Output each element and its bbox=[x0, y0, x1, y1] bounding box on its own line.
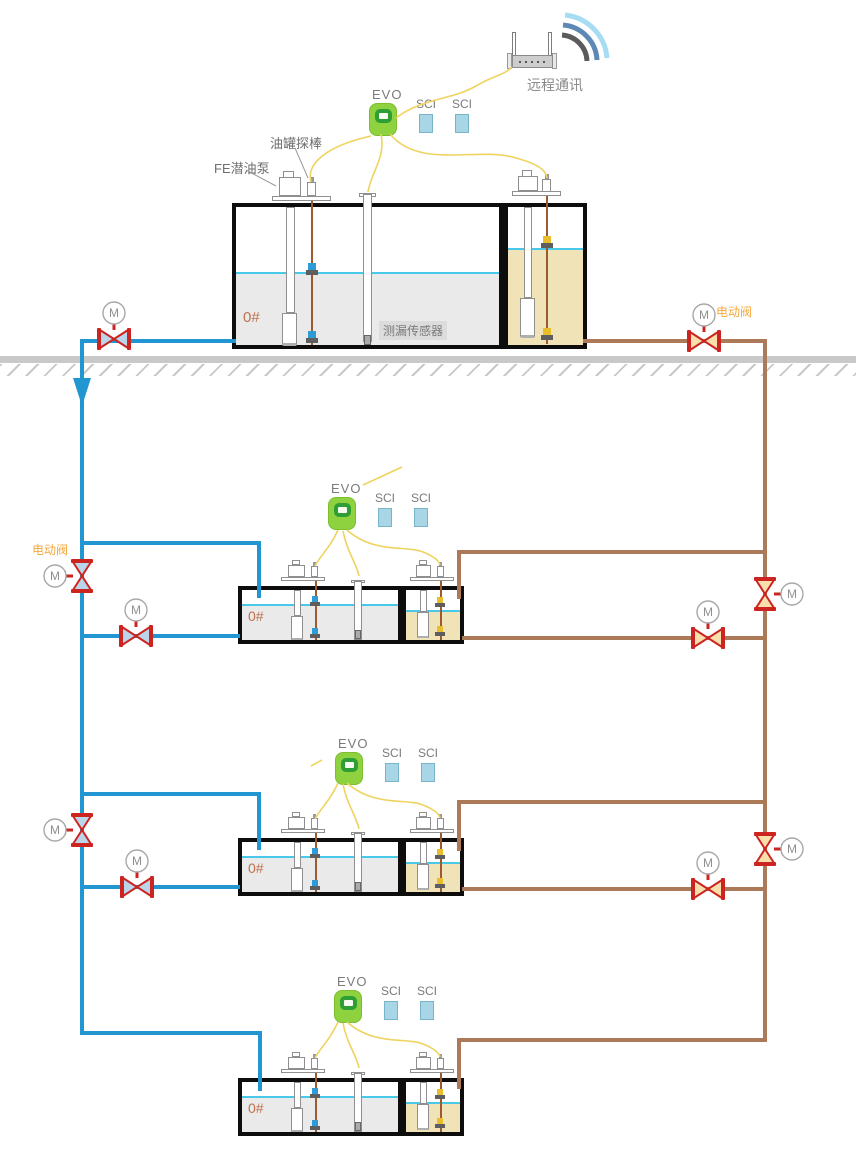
fuel-grade-label: 0# bbox=[248, 1100, 264, 1116]
tank-divider-wall bbox=[398, 1082, 406, 1132]
manhole-flange bbox=[272, 196, 331, 201]
evo-label: EVO bbox=[372, 87, 402, 102]
fuel-grade-label: 0# bbox=[243, 309, 260, 326]
tank-probe-head bbox=[307, 182, 316, 196]
tank-divider-wall bbox=[398, 590, 406, 640]
probe-connector bbox=[313, 814, 316, 818]
evo-console-icon bbox=[328, 497, 356, 530]
ground-hatch bbox=[0, 364, 856, 376]
evo-console-unit: EVO SCI SCI bbox=[334, 736, 484, 798]
probe-float-base bbox=[435, 884, 445, 888]
svg-text:M: M bbox=[50, 569, 60, 583]
fuel-station-diagram: 远程通讯 EVO SCI SCI EVO SCI SCI EVO SCI SCI… bbox=[0, 0, 856, 1154]
probe-float-marker bbox=[308, 263, 316, 270]
manhole-flange bbox=[410, 1069, 454, 1073]
wifi-arc-middle bbox=[563, 25, 597, 60]
evo-label: EVO bbox=[338, 736, 368, 751]
buried-fuel-tank: 0# bbox=[238, 1078, 464, 1136]
probe-float-base bbox=[310, 1094, 320, 1098]
pump-motor-icon bbox=[416, 565, 431, 577]
sci-module-icon bbox=[414, 508, 428, 527]
sci-module-icon bbox=[421, 763, 435, 782]
wifi-arc-outer bbox=[565, 15, 607, 58]
evo-console-unit: EVO SCI SCI bbox=[327, 481, 477, 543]
gasoline-pipeline bbox=[459, 341, 765, 1089]
tank-liquid-gasoline bbox=[406, 862, 460, 892]
svg-text:M: M bbox=[50, 823, 60, 837]
valve-motor-icon bbox=[781, 583, 803, 605]
pump-tube bbox=[420, 842, 427, 864]
router-leds bbox=[519, 61, 545, 63]
submersible-pump-icon bbox=[291, 868, 303, 892]
probe-float-marker bbox=[543, 236, 551, 243]
probe-float-base bbox=[541, 243, 553, 248]
tank-liquid-diesel bbox=[242, 1096, 398, 1132]
wire-to-remote-stub bbox=[311, 760, 322, 766]
wifi-signal-icon bbox=[562, 15, 607, 61]
pump-motor-icon bbox=[416, 1057, 431, 1069]
probe-float-base bbox=[435, 632, 445, 636]
tank-liquid-gasoline bbox=[406, 610, 460, 640]
manhole-flange bbox=[410, 577, 454, 581]
evo-console-unit: EVO SCI SCI bbox=[333, 974, 483, 1036]
gasoline-fill-branch-row2 bbox=[459, 552, 765, 599]
submersible-pump-icon bbox=[291, 616, 303, 640]
probe-float-base bbox=[306, 338, 318, 343]
manhole-flange bbox=[281, 829, 325, 833]
fe-pump-label: FE潜油泵 bbox=[214, 158, 270, 177]
probe-float-base bbox=[310, 602, 320, 606]
evo-console-icon bbox=[369, 103, 397, 136]
manhole-flange bbox=[281, 577, 325, 581]
valve-motor-icon bbox=[125, 599, 147, 621]
tank-probe-head bbox=[311, 818, 318, 829]
pump-tube bbox=[294, 1082, 301, 1108]
tank-liquid-diesel bbox=[242, 604, 398, 640]
sci-module: SCI bbox=[377, 746, 407, 782]
sci-module-icon bbox=[384, 1001, 398, 1020]
svg-text:M: M bbox=[109, 306, 119, 320]
valve-motor-icon bbox=[697, 852, 719, 874]
tank-probe-label: 油罐探棒 bbox=[270, 133, 322, 152]
sci-module: SCI bbox=[413, 746, 443, 782]
svg-text:M: M bbox=[703, 605, 713, 619]
probe-connector bbox=[313, 562, 316, 566]
motor-valve: M bbox=[97, 302, 131, 350]
submersible-pump-icon bbox=[282, 313, 297, 346]
submersible-pump-icon bbox=[291, 1108, 303, 1132]
probe-connector bbox=[310, 177, 314, 182]
sci-module-icon bbox=[420, 1001, 434, 1020]
sci-module: SCI bbox=[376, 984, 406, 1020]
pump-motor-cap bbox=[522, 170, 532, 177]
evo-label: EVO bbox=[337, 974, 367, 989]
sci-module-icon bbox=[378, 508, 392, 527]
evo-console-unit: EVO SCI SCI bbox=[368, 87, 518, 149]
diesel-main-pipe bbox=[82, 341, 260, 1091]
svg-text:M: M bbox=[131, 603, 141, 617]
buried-fuel-tank: 0# bbox=[238, 838, 464, 896]
tank-probe-head bbox=[437, 566, 444, 577]
probe-float-base bbox=[541, 335, 553, 340]
tank-divider-wall bbox=[499, 207, 508, 345]
remote-comm-label: 远程通讯 bbox=[527, 75, 583, 95]
probe-float-marker bbox=[543, 328, 551, 335]
svg-text:M: M bbox=[703, 856, 713, 870]
tank-liquid-gasoline bbox=[406, 1102, 460, 1132]
sci-module-icon bbox=[419, 114, 433, 133]
pump-motor-icon bbox=[416, 817, 431, 829]
probe-float-base bbox=[435, 1124, 445, 1128]
sci-module: SCI bbox=[447, 97, 477, 133]
sci-module: SCI bbox=[370, 491, 400, 527]
pump-tube bbox=[524, 207, 532, 298]
probe-connector bbox=[439, 562, 442, 566]
diesel-fill-branch-row3 bbox=[82, 794, 259, 850]
submersible-pump-icon bbox=[417, 864, 429, 890]
pump-motor-icon bbox=[288, 817, 305, 829]
svg-text:M: M bbox=[787, 842, 797, 856]
motor-valve: M bbox=[120, 850, 154, 898]
manhole-flange bbox=[410, 829, 454, 833]
svg-text:M: M bbox=[699, 308, 709, 322]
svg-text:M: M bbox=[787, 587, 797, 601]
evo-screen bbox=[334, 503, 351, 517]
probe-connector bbox=[313, 1054, 316, 1058]
motor-valve: M bbox=[44, 813, 93, 847]
pump-tube bbox=[294, 590, 301, 616]
evo-screen bbox=[375, 109, 392, 123]
valve-motor-icon bbox=[781, 838, 803, 860]
tank-probe-leader bbox=[295, 148, 308, 178]
electric-valve-label: 电动阀 bbox=[716, 303, 752, 320]
pump-motor-icon bbox=[288, 565, 305, 577]
leak-sensor-icon bbox=[355, 630, 361, 639]
tank-divider-wall bbox=[398, 842, 406, 892]
probe-float-base bbox=[310, 854, 320, 858]
probe-float-marker bbox=[308, 331, 316, 338]
valve-motor-icon bbox=[44, 565, 66, 587]
evo-console-icon bbox=[335, 752, 363, 785]
probe-connector bbox=[439, 814, 442, 818]
pump-motor-cap bbox=[283, 171, 294, 178]
pump-tube bbox=[420, 590, 427, 612]
gasoline-main-pipe bbox=[459, 341, 765, 1089]
ground-line bbox=[0, 356, 856, 363]
valve-motor-icon bbox=[697, 601, 719, 623]
probe-connector bbox=[545, 174, 549, 179]
router-icon bbox=[512, 55, 553, 68]
tank-probe-head bbox=[437, 818, 444, 829]
tank-probe-head bbox=[437, 1058, 444, 1069]
pump-motor-cap bbox=[292, 812, 300, 817]
probe-float-base bbox=[435, 603, 445, 607]
sci-module: SCI bbox=[412, 984, 442, 1020]
pump-motor-cap bbox=[419, 560, 427, 565]
probe-float-base bbox=[310, 886, 320, 890]
diesel-pipeline bbox=[82, 341, 260, 1091]
evo-label: EVO bbox=[331, 481, 361, 496]
valve-motor-icon bbox=[44, 819, 66, 841]
electric-valve-label: 电动阀 bbox=[32, 541, 68, 558]
valve-motor-icon bbox=[126, 850, 148, 872]
motor-valve: M bbox=[754, 577, 803, 611]
probe-wire bbox=[546, 196, 548, 344]
pump-tube bbox=[286, 207, 295, 313]
pump-tube bbox=[294, 842, 301, 868]
leak-sensor-label: 测漏传感器 bbox=[379, 321, 447, 340]
fuel-grade-label: 0# bbox=[248, 860, 264, 876]
probe-float-base bbox=[306, 270, 318, 275]
motor-valve: M bbox=[754, 832, 803, 866]
pump-tube bbox=[420, 1082, 427, 1104]
manhole-flange bbox=[281, 1069, 325, 1073]
tank-probe-head bbox=[311, 1058, 318, 1069]
evo-console-icon bbox=[334, 990, 362, 1023]
svg-text:M: M bbox=[132, 854, 142, 868]
probe-connector bbox=[439, 1054, 442, 1058]
submersible-pump-icon bbox=[417, 1104, 429, 1130]
buried-fuel-tank: 0# bbox=[238, 586, 464, 644]
sci-module-icon bbox=[455, 114, 469, 133]
motor-valve: M bbox=[691, 601, 725, 649]
wifi-arc-inner bbox=[562, 35, 587, 61]
submersible-pump-icon bbox=[417, 612, 429, 638]
leak-sensor-icon bbox=[355, 1122, 361, 1131]
probe-float-base bbox=[310, 634, 320, 638]
probe-float-base bbox=[435, 1095, 445, 1099]
tank-probe-head bbox=[542, 179, 551, 192]
leak-sensor-tube bbox=[363, 194, 372, 342]
leak-sensor-icon bbox=[355, 882, 361, 891]
pump-motor-cap bbox=[292, 560, 300, 565]
flow-direction-arrow bbox=[73, 378, 91, 406]
diesel-fill-branch-row2 bbox=[82, 543, 259, 598]
probe-float-base bbox=[435, 855, 445, 859]
manhole-flange bbox=[512, 191, 561, 196]
tank-probe-head bbox=[311, 566, 318, 577]
evo-screen bbox=[341, 758, 358, 772]
sci-module-icon bbox=[385, 763, 399, 782]
motor-valve: M bbox=[119, 599, 153, 647]
sci-module: SCI bbox=[406, 491, 436, 527]
motor-valve: M bbox=[691, 852, 725, 900]
sci-module: SCI bbox=[411, 97, 441, 133]
pump-motor-icon bbox=[518, 176, 538, 191]
leak-sensor-icon bbox=[364, 335, 371, 345]
motor-valve: M bbox=[44, 559, 93, 593]
valve-motor-icon bbox=[103, 302, 125, 324]
probe-float-base bbox=[310, 1126, 320, 1130]
main-fuel-tank: 0# 测漏传感器 bbox=[232, 203, 587, 349]
evo-screen bbox=[340, 996, 357, 1010]
pump-motor-cap bbox=[292, 1052, 300, 1057]
pump-motor-cap bbox=[419, 812, 427, 817]
gasoline-fill-branch-row3 bbox=[459, 802, 765, 851]
pump-motor-icon bbox=[279, 177, 301, 196]
submersible-pump-icon bbox=[520, 298, 535, 338]
tank-liquid-diesel bbox=[242, 856, 398, 892]
fuel-grade-label: 0# bbox=[248, 608, 264, 624]
pump-motor-cap bbox=[419, 1052, 427, 1057]
pump-motor-icon bbox=[288, 1057, 305, 1069]
valve-motor-icon bbox=[693, 304, 715, 326]
